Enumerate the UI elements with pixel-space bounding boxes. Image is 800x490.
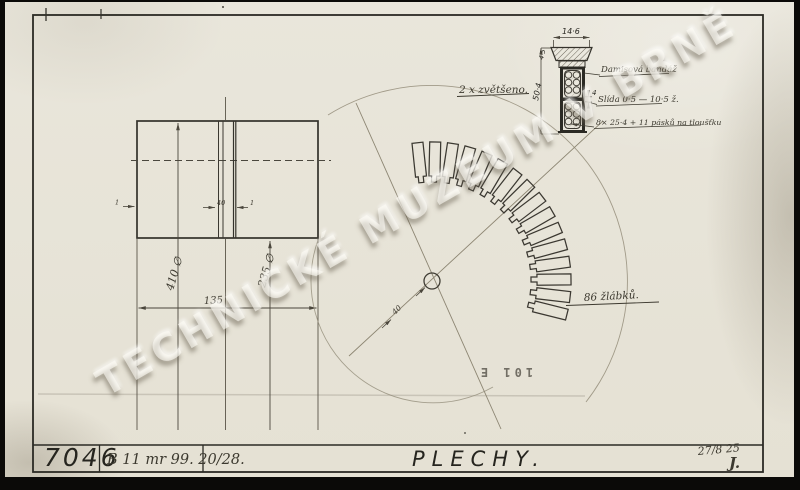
signature: J. bbox=[726, 454, 740, 472]
dim-outer-diameter: 410 ∅ bbox=[163, 255, 185, 293]
conductor-wire bbox=[573, 103, 580, 110]
drawing-canvas: 7046 B 11 mr 99. 20/28. PLECHY. 27/8 25 … bbox=[0, 0, 800, 490]
note-strips: 8× 25·4 + 11 pásků na tloušťku bbox=[596, 118, 721, 127]
drawing-title: PLECHY. bbox=[412, 447, 546, 471]
front-view: 40 86 žlábků. 101 E bbox=[311, 85, 659, 429]
inventory-stamp: 101 E bbox=[477, 365, 533, 379]
conductor-wire bbox=[573, 118, 580, 125]
dim-separator: 4 bbox=[592, 89, 596, 97]
dim-width: 135 bbox=[204, 295, 224, 307]
conductor-wire bbox=[573, 72, 580, 79]
stator-slot bbox=[531, 274, 571, 285]
slot-ring bbox=[412, 142, 571, 320]
conductor-wire bbox=[565, 87, 572, 94]
dim-wedge-height: 4·5 bbox=[537, 49, 547, 61]
stator-slot bbox=[412, 142, 427, 183]
stator-slot bbox=[530, 287, 571, 303]
label-underline bbox=[566, 302, 659, 306]
shaft-center-circle bbox=[424, 273, 440, 289]
reference-code: B 11 mr 99. 20/28. bbox=[106, 452, 245, 468]
side-view: 40 1 1 410 ∅ 235 ∅ 135 bbox=[115, 97, 331, 430]
inner-diameter-arc bbox=[311, 240, 493, 403]
slot-wedge bbox=[551, 48, 592, 61]
conductor-wire bbox=[573, 87, 580, 94]
conductor-wire bbox=[565, 111, 572, 118]
conductor-wire bbox=[565, 118, 572, 125]
paper-crease bbox=[38, 394, 585, 396]
construction-line bbox=[356, 103, 501, 429]
conductor-wire bbox=[573, 111, 580, 118]
dim-top-width: 14·6 bbox=[562, 27, 580, 36]
coil-separator bbox=[563, 98, 582, 102]
dim-inner-diameter: 235 ∅ bbox=[255, 252, 277, 290]
conductor-wire bbox=[565, 79, 572, 86]
slot-count-label: 86 žlábků. bbox=[583, 288, 639, 304]
stator-slot bbox=[429, 142, 441, 182]
stator-slot bbox=[521, 222, 562, 248]
note-mica: Slída 0·5 — 10·5 ž. bbox=[598, 94, 679, 105]
title-block: 7046 B 11 mr 99. 20/28. PLECHY. 27/8 25 … bbox=[44, 441, 740, 472]
document-scan: 7046 B 11 mr 99. 20/28. PLECHY. 27/8 25 … bbox=[0, 0, 800, 490]
stator-slot bbox=[527, 300, 568, 320]
conductor-wire bbox=[565, 103, 572, 110]
conductor-wire bbox=[573, 79, 580, 86]
dim-slot-width: 40 bbox=[216, 199, 225, 207]
dim-height: 50·4 bbox=[531, 82, 544, 101]
detail-view: 2 x zvětšeno. 14·6 50·4 4·5 4 bbox=[457, 27, 721, 134]
conductor-wire bbox=[565, 72, 572, 79]
stator-slot bbox=[466, 151, 492, 192]
border-frame bbox=[33, 6, 763, 472]
dim-gap-right: 1 bbox=[250, 199, 254, 207]
dim-gap-left: 1 bbox=[115, 199, 119, 207]
dim-shaft: 40 bbox=[389, 303, 403, 317]
